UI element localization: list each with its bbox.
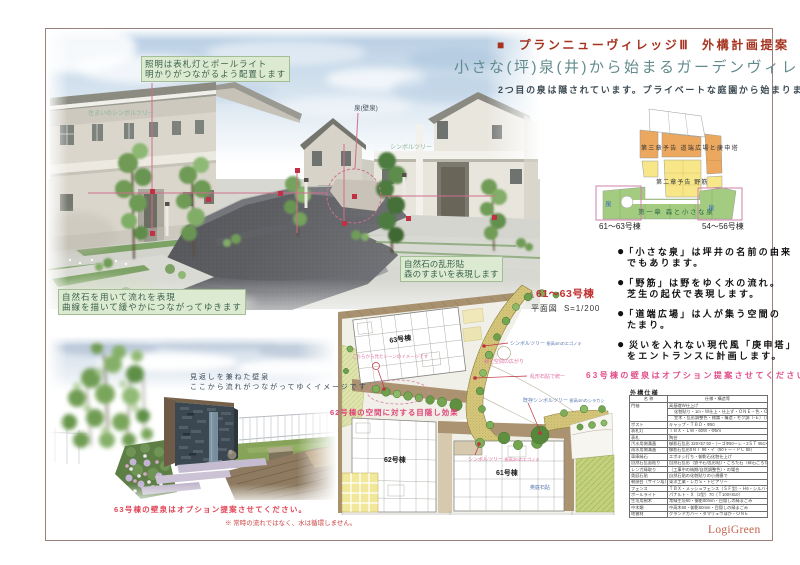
svg-text:既存シンボルツリー 樹高4mのシラカシ: 既存シンボルツリー 樹高4mのシラカシ: [523, 397, 605, 404]
svg-text:第二章予告 野筋: 第二章予告 野筋: [656, 178, 708, 186]
svg-text:61号棟: 61号棟: [496, 468, 519, 477]
svg-text:奥庭石貼: 奥庭石貼: [530, 484, 550, 491]
svg-text:泉: 泉: [708, 203, 715, 212]
svg-text:乱形石貼で統一: 乱形石貼で統一: [530, 373, 565, 380]
svg-text:第一章 森と小さな泉: 第一章 森と小さな泉: [638, 207, 714, 216]
svg-text:こちらから見たシーンのイメージです: こちらから見たシーンのイメージです: [352, 353, 429, 360]
svg-text:泉: 泉: [605, 199, 612, 208]
svg-text:第三章予告 道端広場と庚申塔: 第三章予告 道端広場と庚申塔: [641, 144, 739, 152]
svg-text:緑と空間の広がり: 緑と空間の広がり: [484, 358, 524, 365]
svg-text:シンボルツリー 樹高3mのエゴノキ: シンボルツリー 樹高3mのエゴノキ: [468, 456, 540, 463]
svg-text:62号棟: 62号棟: [384, 455, 407, 464]
svg-text:シンボルツリー 樹高4mのエゴノキ: シンボルツリー 樹高4mのエゴノキ: [510, 340, 582, 347]
